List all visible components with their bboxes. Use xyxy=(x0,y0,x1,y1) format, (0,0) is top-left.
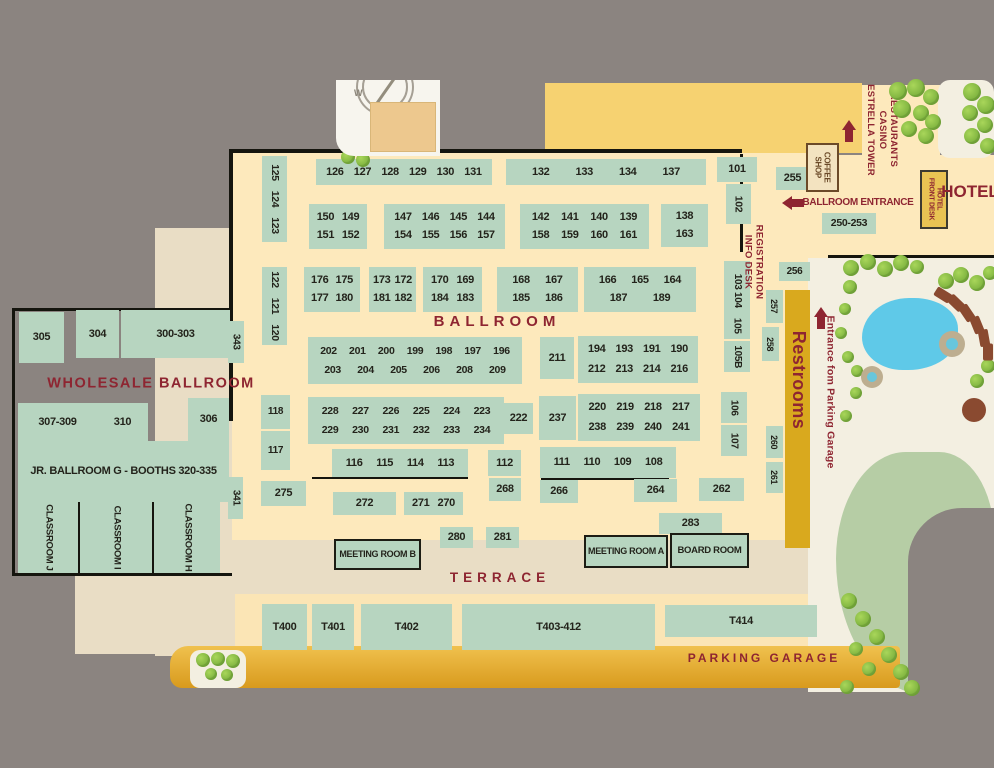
booth-105-text: 105 xyxy=(724,312,750,339)
booth-255: 255 xyxy=(776,167,809,190)
restrooms-label: Restrooms xyxy=(787,331,809,430)
board-room: BOARD ROOM xyxy=(670,533,749,568)
tree-icon xyxy=(923,89,939,105)
arrow-stem xyxy=(817,317,825,329)
classroom-h-text: CLASSROOM H xyxy=(154,502,220,573)
booth-256: 256 xyxy=(779,262,810,281)
block-190-216: 194193191190212213214216 xyxy=(578,336,698,383)
arrow-stem xyxy=(845,130,853,142)
tree-icon xyxy=(970,374,984,388)
ballroom-label: BALLROOM xyxy=(434,313,561,331)
booth-112: 112 xyxy=(488,450,521,476)
terrace-label: TERRACE xyxy=(450,570,550,586)
booth-343-text: 343 xyxy=(228,321,244,363)
booth-t402: T402 xyxy=(361,604,452,650)
block-149-152: 150149151152 xyxy=(309,204,367,249)
booth-266: 266 xyxy=(540,480,578,503)
tree-icon xyxy=(226,654,240,668)
compass-west-label: W xyxy=(354,88,363,98)
booth-102-text: 102 xyxy=(726,184,751,224)
tree-icon xyxy=(855,611,871,627)
block-217-241: 220219218217238239240241 xyxy=(578,394,700,441)
block-164-189: 166165164187189 xyxy=(584,267,696,312)
tower-arrow-icon xyxy=(842,120,856,142)
tree-icon xyxy=(849,642,863,656)
booth-268: 268 xyxy=(489,478,521,501)
classroom-j-text: CLASSROOM J xyxy=(18,502,78,573)
tree-icon xyxy=(860,254,876,270)
tree-icon xyxy=(893,255,909,271)
tree-icon xyxy=(839,303,851,315)
ballroom-entrance-arrow-icon xyxy=(782,196,804,210)
tree-icon xyxy=(843,280,857,294)
tree-icon xyxy=(953,267,969,283)
tree-icon xyxy=(962,105,978,121)
booth-211: 211 xyxy=(540,337,574,379)
tree-icon xyxy=(918,128,934,144)
booth-260-text: 260 xyxy=(766,426,783,458)
parking-entrance-arrow-icon xyxy=(814,307,828,329)
classroom-h: CLASSROOM H xyxy=(154,502,220,573)
booth-118: 118 xyxy=(261,395,290,429)
arrow-stem xyxy=(792,199,804,207)
booth-t403-412: T403-412 xyxy=(462,604,655,650)
strip-122-120: 122 121 120 xyxy=(262,267,287,345)
tree-icon xyxy=(893,664,909,680)
tree-icon xyxy=(869,629,885,645)
block-169-184: 170169184183 xyxy=(423,267,482,312)
booth-101: 101 xyxy=(717,157,757,182)
meeting-room-b: MEETING ROOM B xyxy=(334,539,421,570)
tree-icon xyxy=(983,266,994,280)
booth-306: 306 xyxy=(188,398,229,441)
classroom-i: CLASSROOM I xyxy=(80,502,152,573)
tree-icon xyxy=(205,668,217,680)
booth-105: 105 xyxy=(724,312,750,339)
booth-105B-text: 105B xyxy=(724,341,750,372)
booth-305: 305 xyxy=(19,312,64,363)
booth-300-303: 300-303 xyxy=(121,310,230,358)
tree-icon xyxy=(842,351,854,363)
booth-105B: 105B xyxy=(724,341,750,372)
booth-275: 275 xyxy=(261,481,306,506)
booth-262: 262 xyxy=(699,478,744,501)
wall-line xyxy=(828,255,994,258)
tree-icon xyxy=(211,652,225,666)
strip-125-123-text: 125 124 123 xyxy=(262,156,287,242)
booth-102: 102 xyxy=(726,184,751,224)
booth-t414: T414 xyxy=(665,605,817,637)
booth-t400: T400 xyxy=(262,604,307,650)
booth-343: 343 xyxy=(228,321,244,363)
tree-icon xyxy=(910,260,924,274)
booth-257: 257 xyxy=(766,290,783,323)
block-175-180: 176175177180 xyxy=(304,267,360,312)
tree-icon xyxy=(840,680,854,694)
booth-222: 222 xyxy=(504,403,533,434)
coffee-shop: COFFEESHOP xyxy=(806,143,839,192)
booth-280: 280 xyxy=(440,527,473,548)
floor-plan: 126127128129130131132133134137125 124 12… xyxy=(0,0,994,768)
coffee-shop-text: COFFEESHOP xyxy=(808,145,837,190)
tree-icon xyxy=(904,680,920,696)
booth-341: 341 xyxy=(228,477,243,519)
booth-271-270: 271270 xyxy=(404,492,463,515)
jr-ballroom-g: JR. BALLROOM G - BOOTHS 320-335 xyxy=(18,441,229,502)
classroom-j: CLASSROOM J xyxy=(18,502,78,573)
wall-line xyxy=(231,149,742,153)
tree-icon xyxy=(981,359,994,373)
booth-264: 264 xyxy=(634,479,677,502)
block-172-182: 173172181182 xyxy=(369,267,416,312)
block-139-161: 142141140139158159160161 xyxy=(520,204,649,249)
block-223-234: 228227226225224223229230231232233234 xyxy=(308,397,504,444)
tree-icon xyxy=(841,593,857,609)
arrow-head xyxy=(842,120,856,130)
hotel-label: HOTEL xyxy=(941,182,994,202)
tree-icon xyxy=(980,138,994,154)
booth-107-text: 107 xyxy=(721,425,747,456)
booth-261: 261 xyxy=(766,462,783,493)
wholesale-ballroom-label: WHOLESALE BALLROOM xyxy=(47,375,254,392)
tree-icon xyxy=(881,647,897,663)
tree-icon xyxy=(843,260,859,276)
tree-icon xyxy=(835,327,847,339)
booth-307-309: 307-309 xyxy=(18,403,97,441)
tree-icon xyxy=(850,387,862,399)
tree-icon xyxy=(196,653,210,667)
tree-icon xyxy=(964,128,980,144)
tree-icon xyxy=(889,82,907,100)
tree-icon xyxy=(977,96,994,114)
strip-113-116: 116115114113 xyxy=(332,449,468,477)
booth-261-text: 261 xyxy=(766,462,783,493)
pool-feature-icon xyxy=(946,338,958,350)
compass-area: W S xyxy=(336,80,440,156)
registration-info-desk-label: REGISTRATIONINFO DESK xyxy=(742,225,765,300)
booth-341-text: 341 xyxy=(228,477,243,519)
booth-250-253: 250-253 xyxy=(822,213,876,234)
pool-feature-icon xyxy=(962,398,986,422)
booth-107: 107 xyxy=(721,425,747,456)
strip-125-123: 125 124 123 xyxy=(262,156,287,242)
booth-272: 272 xyxy=(333,492,396,515)
ballroom-entrance-label: BALLROOM ENTRANCE xyxy=(802,197,913,209)
wall-line xyxy=(12,573,232,576)
booth-237: 237 xyxy=(539,396,576,440)
booth-281: 281 xyxy=(486,527,519,548)
wall-line xyxy=(12,308,15,576)
strip-132-137: 132133134137 xyxy=(506,159,706,185)
tree-icon xyxy=(969,275,985,291)
strip-126-131: 126127128129130131 xyxy=(316,159,492,185)
tree-icon xyxy=(221,669,233,681)
tree-icon xyxy=(840,410,852,422)
strip-108-111: 111110109108 xyxy=(540,447,676,478)
booth-310: 310 xyxy=(97,403,148,441)
booth-258-text: 258 xyxy=(762,327,779,361)
tree-icon xyxy=(862,662,876,676)
tree-icon xyxy=(877,261,893,277)
arrow-head xyxy=(782,196,792,210)
entrance-from-parking-label: Entrance fom Parking Garage xyxy=(824,315,837,468)
wall-line xyxy=(312,477,468,479)
block-196-209: 202201200199198197196203204205206208209 xyxy=(308,337,522,384)
meeting-room-a: MEETING ROOM A xyxy=(584,535,668,568)
block-167-186: 168167185186 xyxy=(497,267,578,312)
lounger-icon xyxy=(983,344,993,361)
booth-t401: T401 xyxy=(312,604,354,650)
classroom-i-text: CLASSROOM I xyxy=(80,502,152,573)
parking-garage-label: PARKING GARAGE xyxy=(688,651,840,665)
booth-260: 260 xyxy=(766,426,783,458)
block-144-157: 147146145144154155156157 xyxy=(384,204,505,249)
booth-106-text: 106 xyxy=(721,392,747,423)
arrow-head xyxy=(814,307,828,317)
booth-304: 304 xyxy=(76,310,119,358)
tree-icon xyxy=(977,117,993,133)
strip-122-120-text: 122 121 120 xyxy=(262,267,287,345)
block-138-163: 138163 xyxy=(661,204,708,247)
booth-106: 106 xyxy=(721,392,747,423)
booth-258: 258 xyxy=(762,327,779,361)
booth-257-text: 257 xyxy=(766,290,783,323)
booth-283: 283 xyxy=(659,513,722,534)
tree-icon xyxy=(901,121,917,137)
booth-117: 117 xyxy=(261,431,290,470)
pool-feature-icon xyxy=(867,372,877,382)
tree-icon xyxy=(893,100,911,118)
building-footprint xyxy=(370,102,436,152)
gray-corner-se xyxy=(908,508,994,768)
